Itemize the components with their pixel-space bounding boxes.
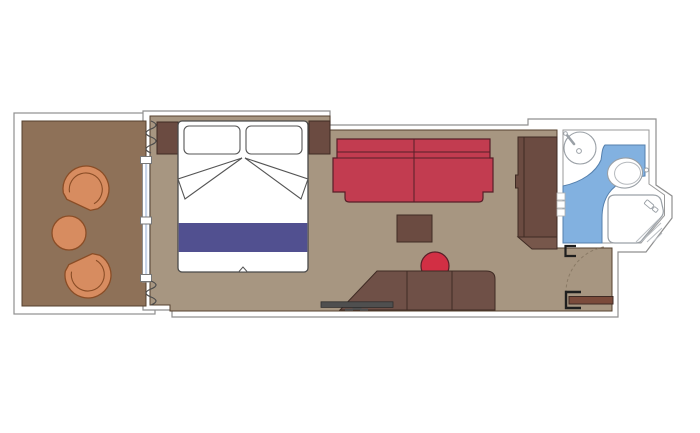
sliding-glass-door — [141, 157, 152, 283]
double-bed — [178, 121, 308, 272]
tv-screen — [321, 302, 393, 308]
nightstand-left — [157, 122, 178, 154]
floor-plan-page — [0, 0, 700, 433]
coffee-table — [397, 215, 432, 242]
bed-runner — [179, 223, 308, 252]
shelves — [557, 193, 565, 216]
wardrobe — [516, 137, 558, 249]
cabin-floor-plan — [0, 0, 700, 433]
pillow-icon — [246, 126, 302, 154]
entry-door — [569, 297, 613, 305]
balcony — [22, 121, 146, 306]
nightstand-right — [309, 121, 330, 154]
round-table-icon — [52, 216, 86, 250]
flush-button — [645, 168, 649, 172]
pillow-icon — [184, 126, 240, 154]
sofa — [333, 139, 493, 202]
sink-icon — [564, 132, 596, 164]
